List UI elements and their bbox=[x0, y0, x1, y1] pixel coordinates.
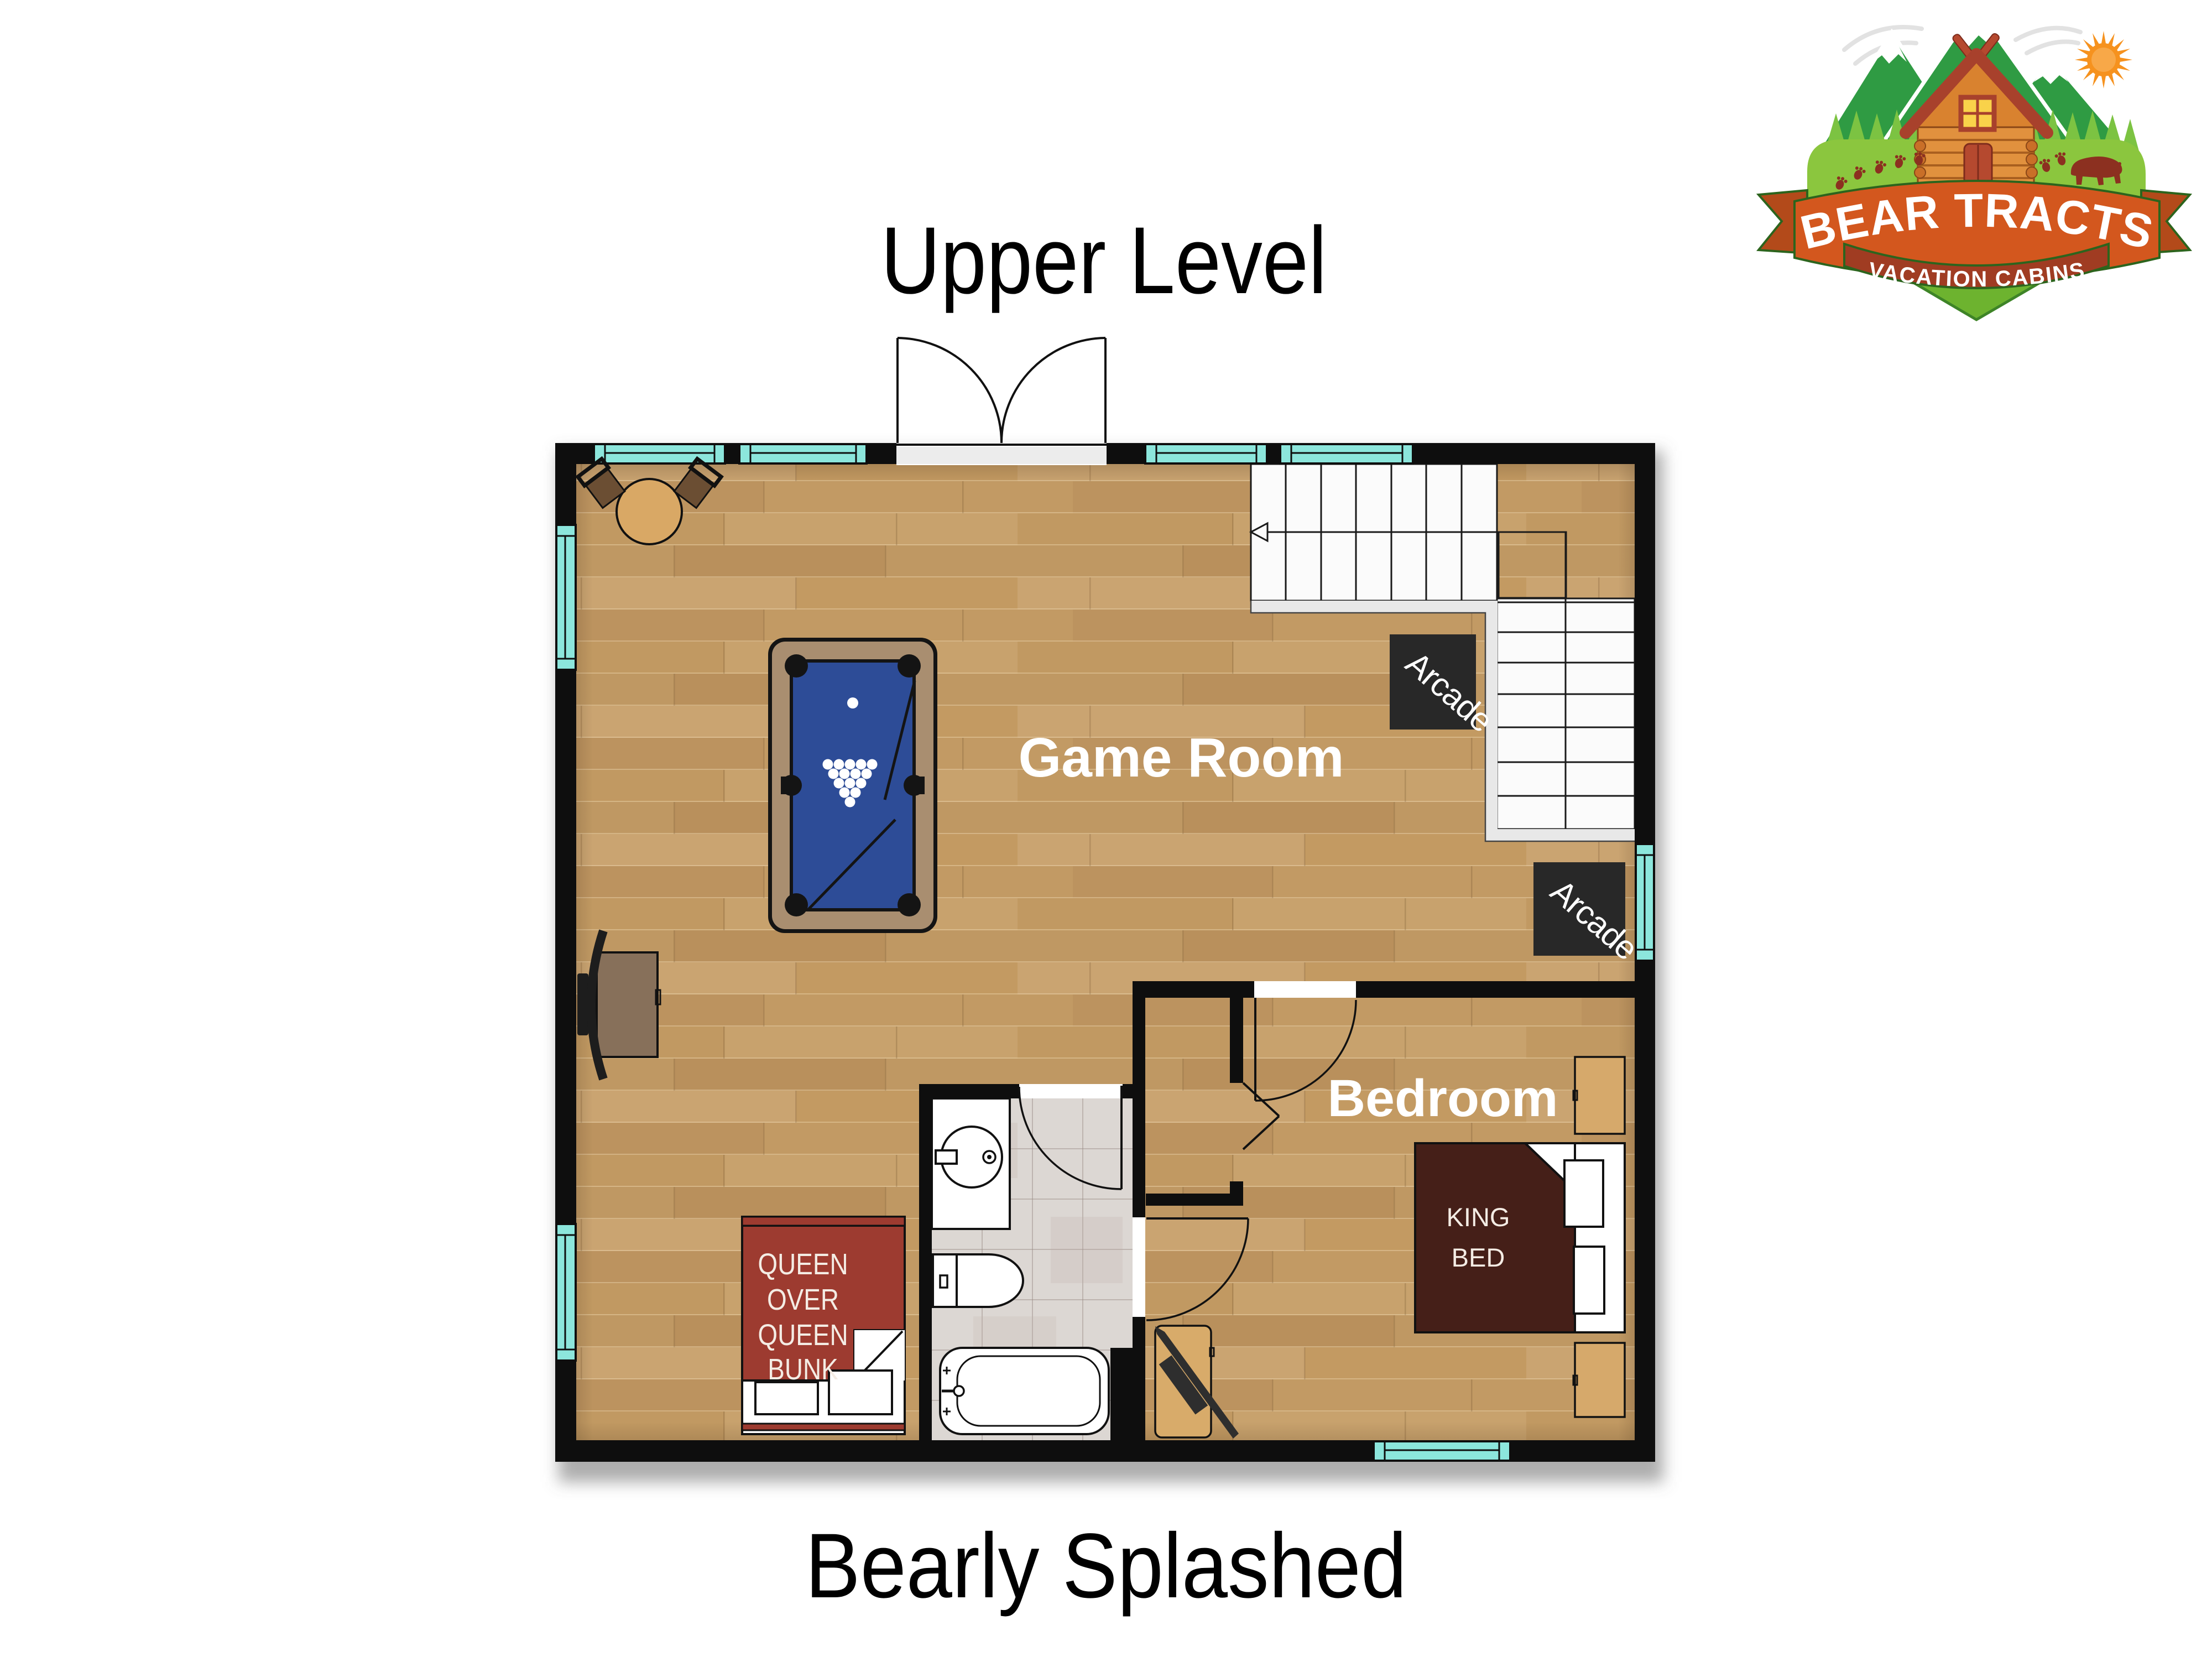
svg-text:QUEEN: QUEEN bbox=[758, 1319, 848, 1352]
svg-text:OVER: OVER bbox=[767, 1283, 839, 1316]
svg-text:Bearly Splashed: Bearly Splashed bbox=[805, 1515, 1407, 1617]
svg-text:KING: KING bbox=[1447, 1202, 1510, 1232]
svg-text:Game Room: Game Room bbox=[1018, 727, 1344, 789]
svg-text:BUNK: BUNK bbox=[768, 1353, 838, 1386]
svg-text:BED: BED bbox=[1452, 1243, 1505, 1272]
svg-text:Bedroom: Bedroom bbox=[1328, 1069, 1558, 1128]
svg-text:QUEEN: QUEEN bbox=[758, 1248, 848, 1281]
svg-text:Upper Level: Upper Level bbox=[881, 207, 1327, 314]
